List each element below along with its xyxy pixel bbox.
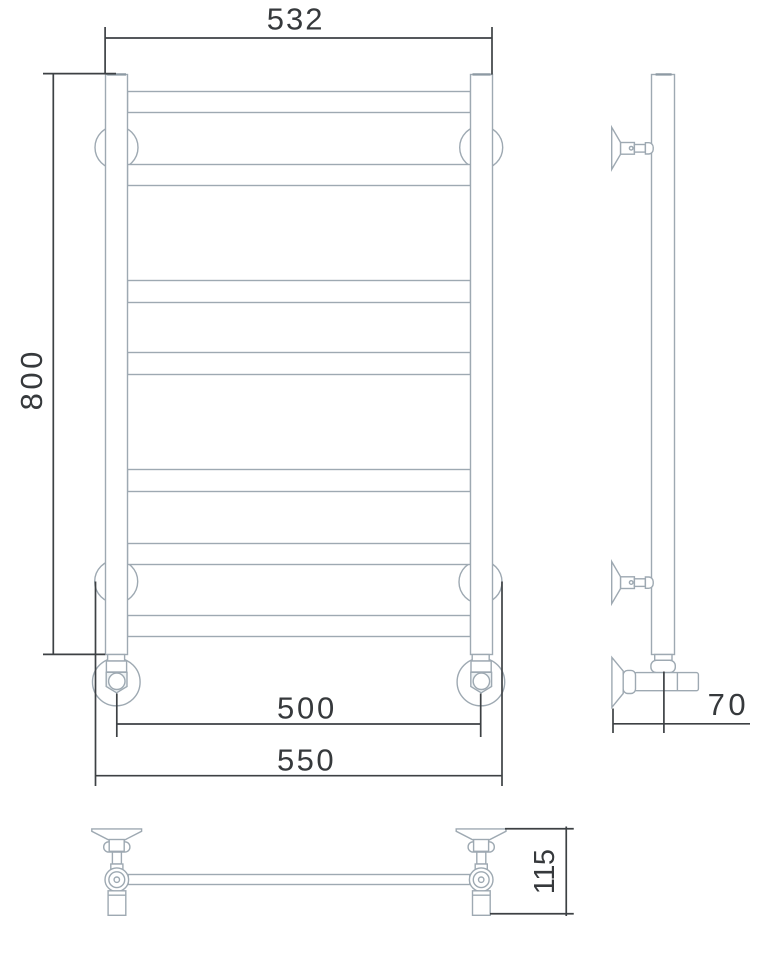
svg-text:550: 550 [277,742,336,777]
svg-text:800: 800 [14,348,49,410]
svg-text:70: 70 [708,687,749,722]
svg-text:532: 532 [267,2,325,37]
svg-text:500: 500 [277,690,337,725]
svg-text:115: 115 [529,850,561,895]
